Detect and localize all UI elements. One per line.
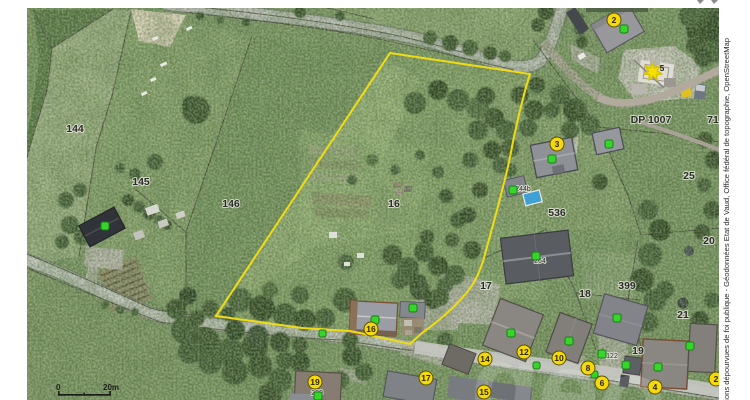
- svg-text:2: 2: [714, 374, 719, 384]
- svg-text:399: 399: [618, 280, 636, 292]
- svg-text:71: 71: [707, 114, 719, 126]
- svg-text:2: 2: [612, 15, 617, 25]
- svg-text:244b: 244b: [515, 186, 531, 193]
- svg-text:4: 4: [653, 382, 658, 392]
- svg-text:146: 146: [222, 198, 240, 210]
- svg-text:16: 16: [388, 198, 400, 210]
- svg-text:3: 3: [555, 139, 560, 149]
- svg-text:8: 8: [586, 363, 591, 373]
- svg-text:rmations dépourvues de foi pub: rmations dépourvues de foi publique - Gé…: [722, 38, 731, 400]
- svg-text:0: 0: [56, 383, 61, 392]
- svg-text:17: 17: [480, 280, 492, 292]
- svg-text:12: 12: [519, 347, 529, 357]
- svg-text:20m: 20m: [103, 383, 119, 392]
- svg-text:18: 18: [579, 288, 591, 300]
- svg-text:14: 14: [480, 354, 490, 364]
- svg-text:19: 19: [310, 377, 320, 387]
- svg-text:145: 145: [132, 176, 150, 188]
- svg-text:536: 536: [548, 207, 566, 219]
- svg-text:122: 122: [606, 353, 618, 360]
- svg-text:17: 17: [421, 373, 431, 383]
- svg-text:19: 19: [632, 345, 644, 357]
- svg-text:DP 1007: DP 1007: [631, 114, 672, 126]
- svg-text:6: 6: [600, 378, 605, 388]
- svg-text:10: 10: [554, 353, 564, 363]
- svg-text:20: 20: [703, 235, 715, 247]
- svg-text:144: 144: [66, 123, 84, 135]
- svg-text:21: 21: [677, 309, 689, 321]
- svg-text:16: 16: [366, 324, 376, 334]
- svg-text:25: 25: [683, 170, 695, 182]
- svg-text:5: 5: [660, 63, 665, 73]
- svg-text:15: 15: [479, 387, 489, 397]
